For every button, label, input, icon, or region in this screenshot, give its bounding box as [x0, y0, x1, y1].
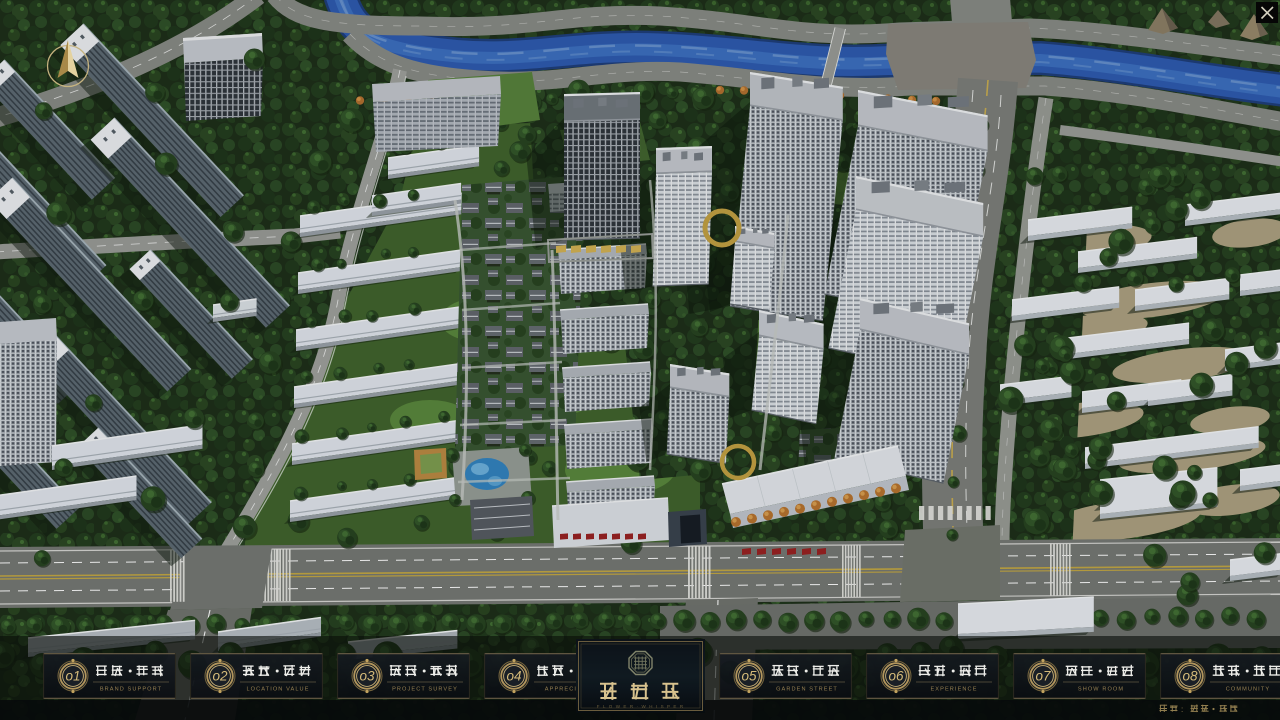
svg-text:o7: o7	[1035, 669, 1051, 684]
svg-text:o4: o4	[506, 669, 521, 684]
svg-text:o8: o8	[1182, 669, 1198, 684]
svg-text:SHOW ROOM: SHOW ROOM	[1078, 687, 1124, 693]
svg-text:o3: o3	[359, 669, 375, 684]
svg-text:F L O W E R · W H I S P E R: F L O W E R · W H I S P E R	[597, 704, 684, 709]
svg-text:BRAND SUPPORT: BRAND SUPPORT	[100, 687, 162, 693]
svg-text:PROJECT SURVEY: PROJECT SURVEY	[392, 687, 458, 693]
svg-text:o5: o5	[741, 669, 757, 684]
svg-text:COMMUNITY: COMMUNITY	[1226, 687, 1270, 693]
svg-text::: :	[1181, 705, 1183, 714]
svg-text:EXPERIENCE: EXPERIENCE	[930, 687, 977, 693]
svg-text:GARDEN STREET: GARDEN STREET	[776, 687, 838, 693]
svg-text:o6: o6	[888, 669, 904, 684]
svg-text:LOCATION VALUE: LOCATION VALUE	[246, 687, 309, 693]
svg-text:o1: o1	[65, 669, 80, 684]
svg-text:o2: o2	[212, 669, 228, 684]
